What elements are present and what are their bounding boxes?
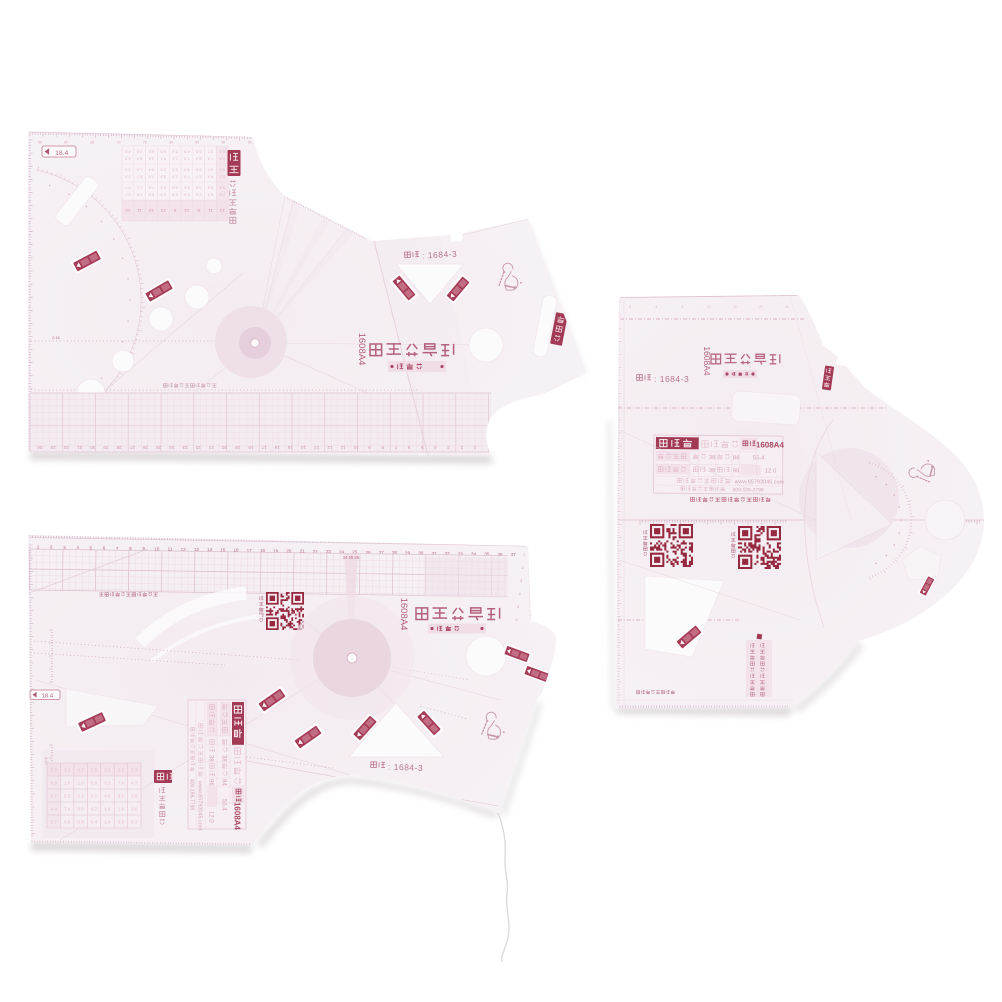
svg-text:38: 38	[221, 755, 227, 762]
svg-text:4.4: 4.4	[183, 168, 189, 173]
svg-text:96: 96	[208, 779, 214, 786]
svg-text:1.3: 1.3	[183, 157, 189, 162]
svg-text:1.6: 1.6	[104, 806, 111, 811]
svg-text:2.7: 2.7	[51, 819, 58, 824]
svg-text:1.1: 1.1	[172, 157, 178, 162]
svg-text:8.7: 8.7	[124, 193, 130, 198]
svg-text:4.3: 4.3	[207, 175, 213, 180]
svg-text:38: 38	[208, 755, 214, 762]
svg-text:2.2: 2.2	[195, 193, 201, 198]
svg-text:2:16: 2:16	[52, 335, 61, 340]
svg-text:31: 31	[77, 445, 83, 450]
svg-text:8.3: 8.3	[219, 175, 225, 180]
svg-text:8.8: 8.8	[51, 780, 58, 785]
svg-text:3.8: 3.8	[131, 806, 138, 811]
svg-text:1: 1	[37, 545, 40, 550]
svg-text:4.8: 4.8	[183, 150, 189, 155]
svg-text:12: 12	[327, 445, 333, 450]
svg-text:80: 80	[169, 141, 173, 145]
svg-text:5: 5	[420, 445, 423, 450]
svg-text:22: 22	[195, 445, 201, 450]
svg-text:4.0: 4.0	[104, 793, 111, 798]
svg-text:www.85793045.com: www.85793045.com	[197, 780, 203, 831]
svg-text:30: 30	[90, 445, 96, 450]
svg-text:56.4: 56.4	[753, 455, 765, 461]
svg-text:90: 90	[222, 141, 226, 145]
svg-text:34: 34	[471, 552, 477, 557]
svg-text:10: 10	[353, 445, 359, 450]
svg-text:7.0: 7.0	[136, 193, 142, 198]
svg-text:18.4: 18.4	[42, 694, 54, 700]
svg-text:24 25 26: 24 25 26	[343, 555, 360, 560]
svg-text:56.4: 56.4	[221, 799, 227, 811]
svg-text:33: 33	[50, 445, 56, 450]
svg-text:7.4: 7.4	[118, 780, 125, 785]
svg-text:12: 12	[184, 208, 190, 213]
svg-text:16: 16	[274, 445, 280, 450]
svg-text:6.3: 6.3	[219, 150, 225, 155]
svg-text:32: 32	[63, 445, 69, 450]
svg-text:400-186-7798: 400-186-7798	[189, 779, 195, 810]
svg-text:5.9: 5.9	[118, 819, 125, 824]
svg-text:6.9: 6.9	[64, 819, 71, 824]
svg-text:5.9: 5.9	[183, 193, 189, 198]
svg-text:18: 18	[248, 445, 254, 450]
svg-text:5.9: 5.9	[219, 168, 225, 173]
svg-text:0: 0	[629, 305, 631, 309]
svg-text:8: 8	[681, 305, 683, 309]
svg-text:9.6: 9.6	[207, 186, 213, 191]
svg-text:30: 30	[418, 551, 424, 556]
svg-text:3.6: 3.6	[131, 793, 138, 798]
svg-text:3.4: 3.4	[148, 168, 154, 173]
svg-text:6.4: 6.4	[91, 819, 98, 824]
svg-text:7.3: 7.3	[207, 157, 213, 162]
svg-text:8.5: 8.5	[172, 193, 178, 198]
svg-text:32: 32	[445, 551, 451, 556]
svg-text:8.0: 8.0	[148, 150, 154, 155]
svg-text:8.6: 8.6	[183, 186, 189, 191]
svg-text:3.1: 3.1	[91, 793, 98, 798]
svg-text:6.0: 6.0	[195, 150, 201, 155]
svg-text:29: 29	[103, 445, 109, 450]
svg-text:1: 1	[473, 445, 476, 450]
svg-text:1.1: 1.1	[136, 186, 142, 191]
svg-text:60: 60	[64, 141, 68, 145]
svg-text:23: 23	[182, 445, 188, 450]
svg-text:www.85793045.com: www.85793045.com	[734, 479, 785, 485]
svg-text:8.0: 8.0	[148, 193, 154, 198]
svg-text:24: 24	[785, 305, 789, 309]
svg-text:1608A4: 1608A4	[356, 333, 367, 366]
svg-text:5.7: 5.7	[124, 186, 130, 191]
svg-text:9: 9	[368, 445, 371, 450]
svg-text:7.9: 7.9	[124, 168, 130, 173]
svg-text:7: 7	[394, 445, 397, 450]
svg-text:8.8: 8.8	[77, 819, 84, 824]
svg-text:3.7: 3.7	[207, 168, 213, 173]
svg-text:85: 85	[195, 141, 199, 145]
svg-text:9.5: 9.5	[172, 168, 178, 173]
svg-text:13: 13	[160, 208, 166, 213]
svg-text:: 1684-3: : 1684-3	[422, 249, 458, 261]
svg-text:6.0: 6.0	[160, 150, 166, 155]
svg-text:12: 12	[149, 208, 155, 213]
svg-text:65: 65	[91, 141, 95, 145]
svg-text:6.3: 6.3	[131, 819, 138, 824]
svg-text:24: 24	[169, 445, 175, 450]
svg-text:1.0: 1.0	[64, 780, 71, 785]
svg-text:2.7: 2.7	[207, 150, 213, 155]
svg-text:3.1: 3.1	[104, 780, 111, 785]
svg-text:1608A4: 1608A4	[756, 440, 785, 449]
svg-text:6.7: 6.7	[91, 806, 98, 811]
svg-text:6: 6	[407, 445, 410, 450]
svg-text:15: 15	[287, 445, 293, 450]
svg-text:27: 27	[129, 445, 135, 450]
svg-text:12: 12	[125, 208, 131, 213]
svg-text:2.0: 2.0	[77, 780, 84, 785]
svg-text:37: 37	[511, 552, 517, 557]
svg-text:84: 84	[221, 779, 227, 786]
svg-text:2.6: 2.6	[124, 175, 130, 180]
svg-text:96: 96	[733, 468, 740, 474]
svg-text:8.7: 8.7	[136, 175, 142, 180]
svg-text:1.8: 1.8	[136, 168, 142, 173]
svg-text:38: 38	[709, 455, 716, 461]
svg-text:8.0: 8.0	[77, 806, 84, 811]
svg-text:38: 38	[709, 468, 716, 474]
svg-text:20: 20	[222, 445, 228, 450]
svg-text:1608A4: 1608A4	[702, 346, 712, 376]
svg-text:1608A4: 1608A4	[233, 802, 242, 831]
svg-text:6.9: 6.9	[51, 767, 58, 772]
svg-text:1.8: 1.8	[172, 175, 178, 180]
svg-text:11: 11	[340, 445, 345, 450]
svg-text:4: 4	[434, 445, 437, 450]
svg-text:3.0: 3.0	[172, 186, 178, 191]
svg-text:3: 3	[447, 445, 450, 450]
svg-text:55: 55	[38, 141, 42, 145]
svg-text:7.0: 7.0	[148, 175, 154, 180]
svg-text:1.8: 1.8	[118, 806, 125, 811]
svg-text:: 1684-3: : 1684-3	[654, 374, 689, 384]
svg-text:8: 8	[381, 445, 384, 450]
svg-text:14: 14	[301, 445, 307, 450]
svg-text:8.5: 8.5	[118, 793, 125, 798]
svg-text:2.7: 2.7	[195, 175, 201, 180]
svg-text:35: 35	[484, 552, 490, 557]
svg-text:7.4: 7.4	[219, 157, 225, 162]
svg-text:2.6: 2.6	[118, 767, 125, 772]
svg-text:8.4: 8.4	[136, 157, 142, 162]
svg-text:2.9: 2.9	[160, 168, 166, 173]
svg-text:11: 11	[208, 208, 213, 213]
svg-text:6.5: 6.5	[207, 193, 213, 198]
svg-text:1.5: 1.5	[91, 767, 98, 772]
svg-text:3.0: 3.0	[104, 767, 111, 772]
svg-text:4: 4	[655, 305, 657, 309]
svg-text:1608A4: 1608A4	[398, 598, 409, 631]
svg-text:13: 13	[314, 445, 320, 450]
svg-text:26: 26	[142, 445, 148, 450]
svg-text:36: 36	[497, 552, 503, 557]
svg-text:5.7: 5.7	[51, 793, 58, 798]
svg-text:8.7: 8.7	[77, 767, 84, 772]
svg-text:7.4: 7.4	[64, 806, 71, 811]
svg-text:5.8: 5.8	[91, 780, 98, 785]
svg-text:2.9: 2.9	[160, 193, 166, 198]
svg-text:8.3: 8.3	[195, 157, 201, 162]
svg-text:31: 31	[431, 551, 437, 556]
svg-text:400-186-7798: 400-186-7798	[732, 487, 763, 493]
svg-text:9.1: 9.1	[160, 186, 166, 191]
svg-text:2.3: 2.3	[131, 767, 138, 772]
svg-text:3.9: 3.9	[148, 157, 154, 162]
svg-text:25: 25	[156, 445, 162, 450]
svg-text:4.0: 4.0	[124, 150, 130, 155]
svg-text:13: 13	[219, 208, 225, 213]
svg-text:9.0: 9.0	[136, 150, 142, 155]
svg-text:84: 84	[733, 455, 740, 461]
svg-text:6.6: 6.6	[195, 168, 201, 173]
svg-text:9.1: 9.1	[160, 157, 166, 162]
svg-text:12.0: 12.0	[208, 811, 214, 823]
svg-text:70: 70	[117, 141, 121, 145]
svg-text:75: 75	[143, 141, 147, 145]
svg-text:5.2: 5.2	[77, 793, 84, 798]
svg-text:5.9: 5.9	[172, 150, 178, 155]
svg-text:28: 28	[116, 445, 122, 450]
svg-text:: 1684-3: : 1684-3	[388, 762, 424, 773]
svg-text:16: 16	[733, 305, 737, 309]
svg-text:12.0: 12.0	[765, 468, 777, 474]
svg-text:8.5: 8.5	[124, 157, 130, 162]
svg-text:2.4: 2.4	[104, 819, 111, 824]
svg-text:12: 12	[707, 305, 711, 309]
svg-text:21: 21	[208, 445, 214, 450]
svg-text:7.9: 7.9	[148, 186, 154, 191]
svg-text:4.4: 4.4	[51, 806, 58, 811]
svg-text:5.3: 5.3	[64, 793, 71, 798]
svg-text:5.6: 5.6	[195, 186, 201, 191]
svg-text:7.8: 7.8	[219, 193, 225, 198]
svg-text:19: 19	[235, 445, 241, 450]
svg-text:11: 11	[137, 208, 142, 213]
svg-text:95: 95	[248, 141, 252, 145]
svg-text:18.4: 18.4	[55, 150, 68, 157]
svg-text:7.0: 7.0	[183, 175, 189, 180]
svg-text:34: 34	[37, 445, 43, 450]
svg-text:3.3: 3.3	[64, 767, 71, 772]
svg-text:17: 17	[261, 445, 267, 450]
svg-text:3.9: 3.9	[160, 175, 166, 180]
svg-text:20: 20	[759, 305, 763, 309]
svg-text:2: 2	[460, 445, 463, 450]
svg-text:5.4: 5.4	[219, 186, 225, 191]
svg-text:4.7: 4.7	[131, 780, 138, 785]
